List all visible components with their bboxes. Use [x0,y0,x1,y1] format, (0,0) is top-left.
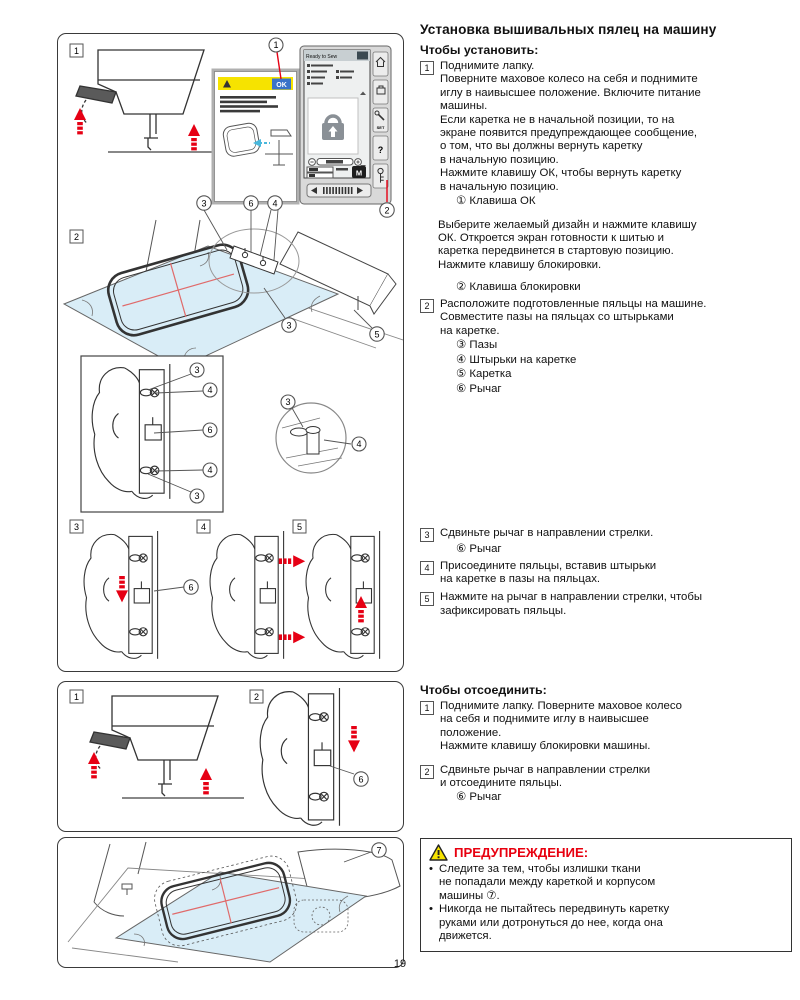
bullet-dot: • [429,863,439,903]
svg-text:6: 6 [358,774,363,784]
step-number: 1 [420,61,434,75]
callout-6b: 6 [154,580,198,594]
svg-text:2: 2 [74,232,79,242]
set-label: SET [377,125,385,130]
callout-lock-key: ② Клавиша блокировки [420,281,794,295]
figure-detach: 1 2 6 [57,681,404,832]
hoop-bracket-detail-box: 3 4 6 4 3 [81,356,223,512]
return-icon [357,52,368,60]
callout-slots: ③ Пазы [420,339,794,353]
screen-header: Ready to Sew [306,54,338,60]
svg-text:2: 2 [384,205,389,215]
help-label: ? [378,145,384,155]
svg-text:2: 2 [254,692,259,702]
svg-text:OK: OK [276,82,287,89]
step-text: Расположите подготовленные пяльцы на маш… [440,298,794,338]
machine-sketch [94,842,146,916]
svg-text:6: 6 [188,582,193,592]
machine-lcd-panel: SET ? Ready to Sew [300,46,391,204]
figure-step2-label: 2 [70,230,83,243]
svg-text:1: 1 [74,46,79,56]
install-step-5: 5 Нажмите на рычаг в направлении стрелки… [420,591,794,618]
figure-warning-carriage: 7 [57,837,404,968]
step-text: Поднимите лапку. Поверните маховое колес… [440,700,794,754]
pin-slot-detail: 3 4 [276,395,366,473]
warning-header: ПРЕДУПРЕЖДЕНИЕ: [429,844,783,861]
page-title: Установка вышивальных пялец на машину [420,22,794,37]
step-text: Поднимите лапку. Поверните маховое колес… [440,60,794,194]
svg-text:3: 3 [285,397,290,407]
svg-text:7: 7 [376,845,381,855]
svg-text:3: 3 [201,198,206,208]
svg-text:4: 4 [356,439,361,449]
callout-4: 4 [260,196,282,260]
detach-heading: Чтобы отсоединить: [420,683,794,697]
step-number: 1 [420,701,434,715]
warning-bullet-2: • Никогда не пытайтесь передвинуть карет… [429,903,783,943]
svg-text:5: 5 [374,329,379,339]
svg-text:5: 5 [297,522,302,532]
bullet-text: Следите за тем, чтобы излишки ткани не п… [439,863,655,903]
detach-text-column: Чтобы отсоединить: 1 Поднимите лапку. По… [420,679,794,805]
svg-text:6: 6 [207,425,212,435]
figure-step2-label: 2 [250,690,263,703]
callout-6: 6 [330,766,368,786]
step-number: 5 [420,592,434,606]
svg-text:4: 4 [207,465,212,475]
figure-step4-label: 4 [197,520,210,533]
install-steps-345: 3 Сдвиньте рычаг в направлении стрелки. … [420,524,794,618]
m-button: M [352,166,366,178]
svg-text:3: 3 [194,365,199,375]
figure-step3-label: 3 [70,520,83,533]
svg-text:M: M [356,169,362,178]
step-number: 4 [420,561,434,575]
callout-6: 6 [244,196,258,252]
step-text: Сдвиньте рычаг в направлении стрелки. [440,527,794,542]
install-step-1: 1 Поднимите лапку. Поверните маховое кол… [420,60,794,194]
svg-text:6: 6 [248,198,253,208]
select-design-paragraph: Выберите желаемый дизайн и нажмите клави… [438,219,794,273]
svg-text:1: 1 [273,40,278,50]
svg-text:3: 3 [286,320,291,330]
install-step-2: 2 Расположите подготовленные пяльцы на м… [420,298,794,338]
figure-step1-label: 1 [70,690,83,703]
step-number: 2 [420,765,434,779]
home-button [373,52,388,76]
callout-lever: ⑥ Рычаг [420,791,794,805]
page-scroll-bar [307,184,371,197]
callout-lever: ⑥ Рычаг [420,383,794,397]
detach-step-1: 1 Поднимите лапку. Поверните маховое кол… [420,700,794,754]
page-number: 19 [0,958,800,970]
step-text: Нажмите на рычаг в направлении стрелки, … [440,591,794,618]
figure-step5-label: 5 [293,520,306,533]
svg-text:4: 4 [272,198,277,208]
figure-step1-label: 1 [70,44,83,57]
callout-lever: ⑥ Рычаг [420,543,794,557]
hoop-on-carriage-drawing [64,220,403,368]
step-number: 2 [420,299,434,313]
callout-ok-key: ① Клавиша ОК [420,195,794,209]
callout-pins: ④ Штырьки на каретке [420,354,794,368]
svg-text:4: 4 [207,385,212,395]
step-text: Сдвиньте рычаг в направлении стрелки и о… [440,764,794,791]
svg-text:3: 3 [194,491,199,501]
warning-title: ПРЕДУПРЕЖДЕНИЕ: [454,845,588,860]
mode-button [373,80,388,104]
install-step-3: 3 Сдвиньте рычаг в направлении стрелки. [420,527,794,542]
detach-step-2: 2 Сдвиньте рычаг в направлении стрелки и… [420,764,794,791]
callout-carriage: ⑤ Каретка [420,368,794,382]
ok-button: OK [272,79,291,90]
bullet-dot: • [429,903,439,943]
bullet-text: Никогда не пытайтесь передвинуть каретку… [439,903,669,943]
warning-bullet-1: • Следите за тем, чтобы излишки ткани не… [429,863,783,903]
svg-text:4: 4 [201,522,206,532]
install-step-4: 4 Присоедините пяльцы, вставив штырьки н… [420,560,794,587]
svg-text:1: 1 [74,692,79,702]
install-heading: Чтобы установить: [420,43,794,57]
step-number: 3 [420,528,434,542]
callout-5: 5 [354,310,384,341]
figure-install: 1 OK [57,33,404,672]
install-text-column: Установка вышивальных пялец на машину Чт… [420,22,794,396]
manual-page: { "page_number": "19", "title": "Установ… [0,0,800,1000]
warning-triangle-icon [429,844,448,861]
step-text: Присоедините пяльцы, вставив штырьки на … [440,560,794,587]
warning-dialog-screen: OK [213,70,298,203]
warning-box: ПРЕДУПРЕЖДЕНИЕ: • Следите за тем, чтобы … [420,838,792,952]
svg-text:3: 3 [74,522,79,532]
